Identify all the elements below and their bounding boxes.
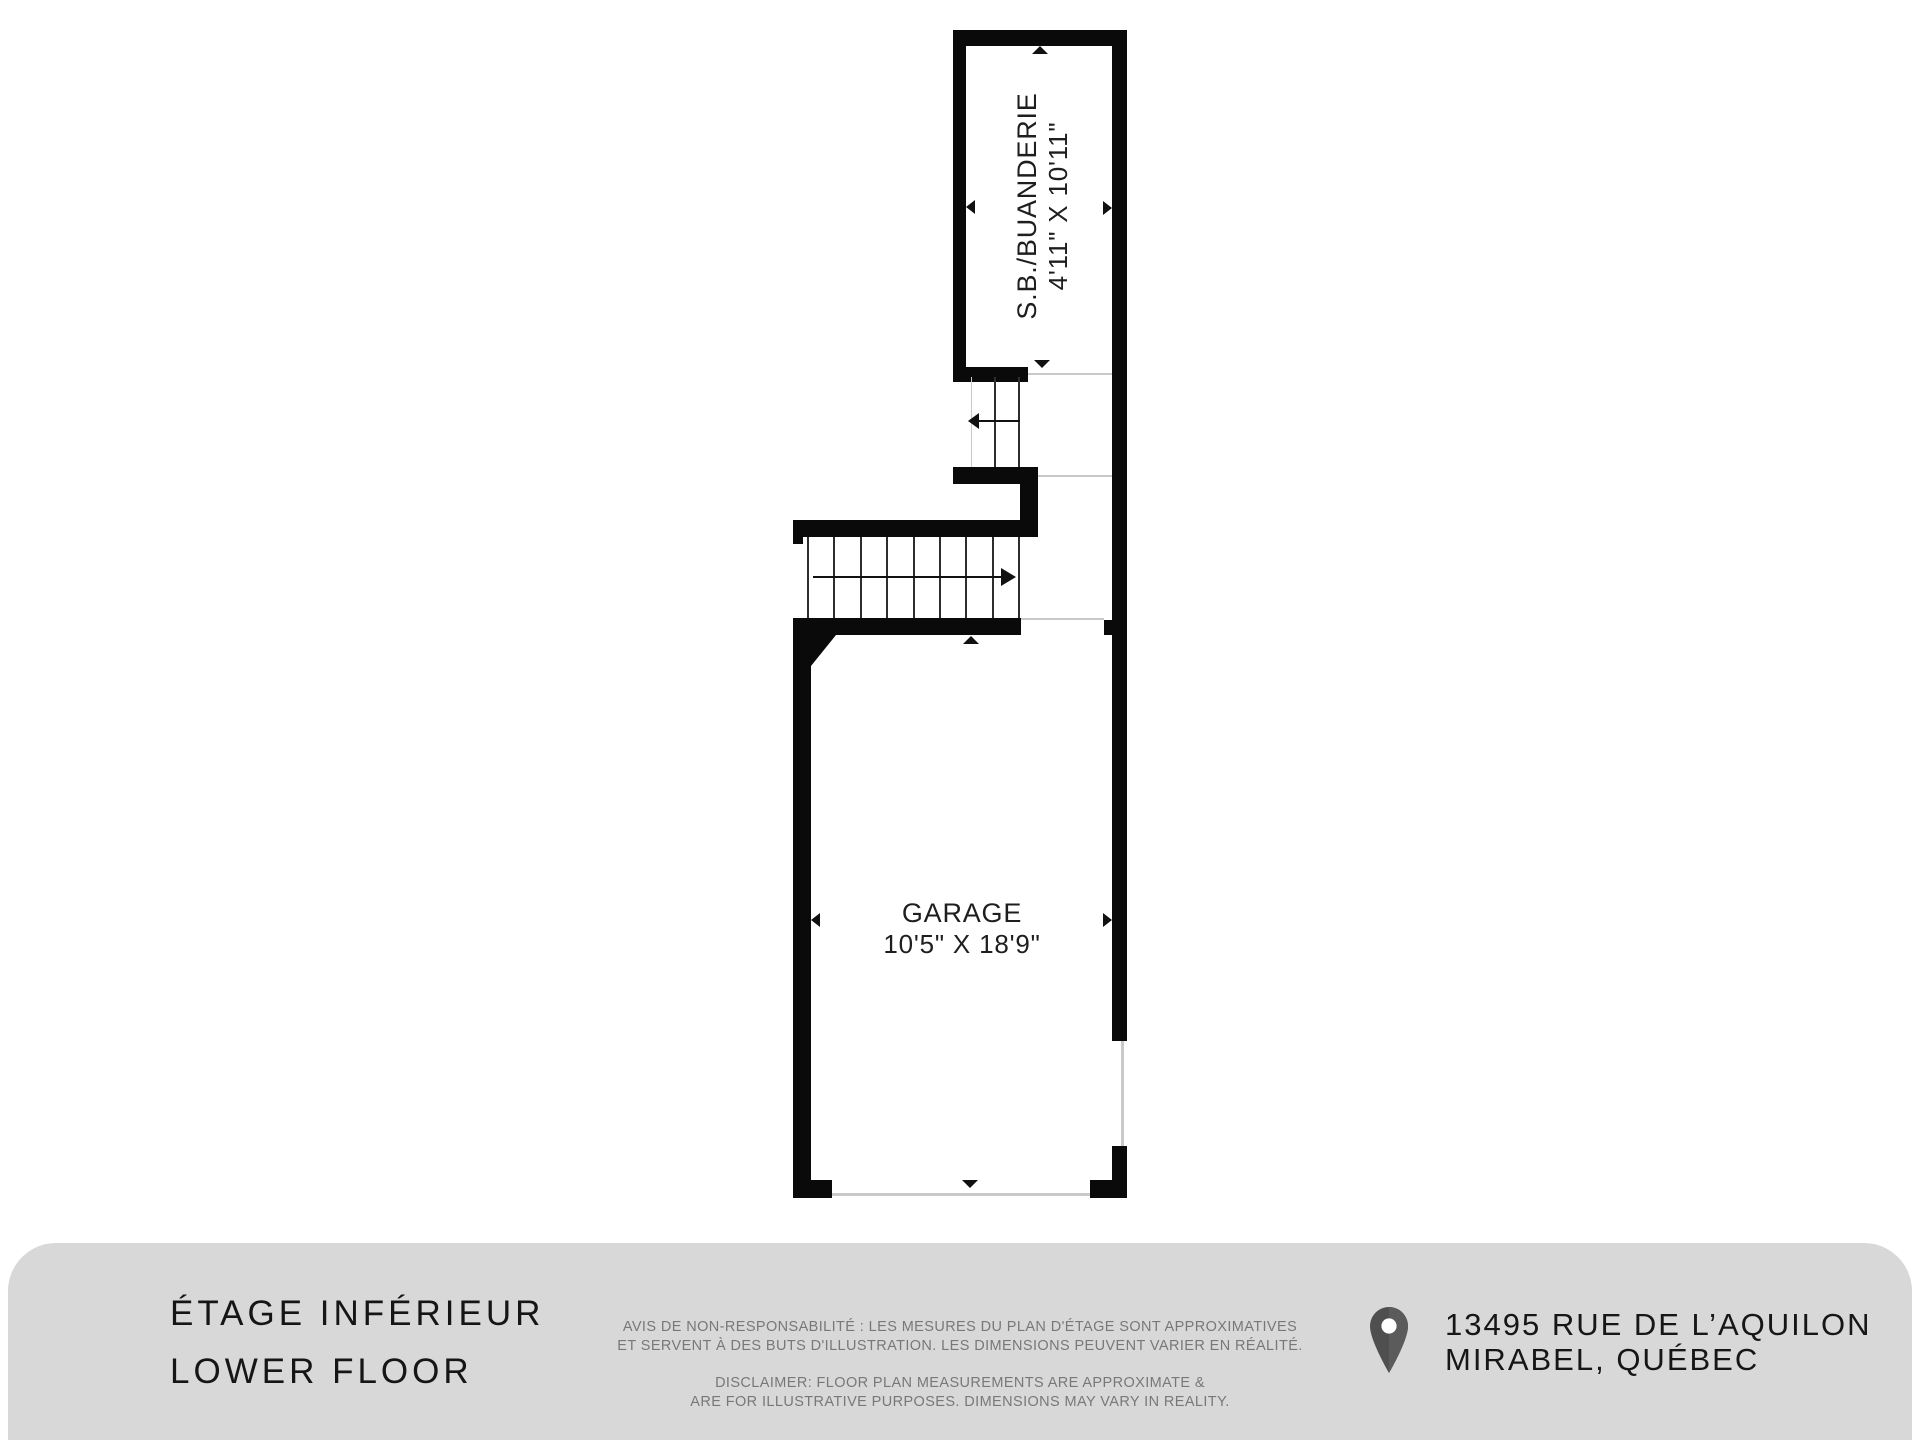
garage-label: GARAGE 10'5" X 18'9" <box>883 898 1040 960</box>
floor-plan: S.B./BUANDERIE 4'11" X 10'11" GARAGE 10'… <box>0 0 1920 1260</box>
wall-garage-left <box>793 618 811 1198</box>
map-pin-icon <box>1370 1306 1408 1379</box>
laundry-room-name: S.B./BUANDERIE <box>1012 92 1043 319</box>
garage-hall-opening-line <box>1021 618 1104 620</box>
disclaimer-english-line1: DISCLAIMER: FLOOR PLAN MEASUREMENTS ARE … <box>560 1374 1360 1393</box>
disclaimer-french-line2: ET SERVENT À DES BUTS D'ILLUSTRATION. LE… <box>560 1337 1360 1356</box>
garage-door-arrow <box>962 1180 978 1188</box>
disclaimer-french: AVIS DE NON-RESPONSABILITÉ : LES MESURES… <box>560 1318 1360 1356</box>
disclaimer-english-line2: ARE FOR ILLUSTRATIVE PURPOSES. DIMENSION… <box>560 1393 1360 1412</box>
laundry-room-label: S.B./BUANDERIE 4'11" X 10'11" <box>1012 92 1074 319</box>
wall-garage-bottom-left <box>793 1180 832 1198</box>
upper-stairs-direction-arrow <box>968 413 979 429</box>
wall-stairs-bottom <box>793 618 1021 635</box>
garage-left-arrow <box>811 913 820 927</box>
wall-right-upper <box>1112 30 1127 1041</box>
floor-plan-page: S.B./BUANDERIE 4'11" X 10'11" GARAGE 10'… <box>0 0 1920 1440</box>
laundry-room-dimensions: 4'11" X 10'11" <box>1043 92 1074 319</box>
address-block: 13495 RUE DE L’AQUILON MIRABEL, QUÉBEC <box>1445 1307 1872 1377</box>
landing-opening-line <box>1038 475 1112 477</box>
floor-title-english: LOWER FLOOR <box>170 1352 473 1392</box>
floor-title-french: ÉTAGE INFÉRIEUR <box>170 1294 544 1334</box>
laundry-door-arrow <box>1034 360 1050 368</box>
laundry-right-arrow <box>1103 201 1112 215</box>
garage-right-arrow <box>1103 913 1112 927</box>
wall-stairs-top <box>793 520 1038 537</box>
wall-right-stub <box>1104 620 1114 635</box>
garage-window-line <box>1121 1041 1124 1146</box>
wall-garage-bottom-right <box>1090 1180 1127 1198</box>
wall-landing-horizontal <box>953 467 1038 484</box>
address-line1: 13495 RUE DE L’AQUILON <box>1445 1307 1872 1342</box>
garage-entry-arrow <box>963 636 979 644</box>
laundry-top-arrow <box>1032 46 1048 54</box>
garage-door-line <box>832 1193 1090 1196</box>
disclaimer-english: DISCLAIMER: FLOOR PLAN MEASUREMENTS ARE … <box>560 1374 1360 1412</box>
garage-dimensions: 10'5" X 18'9" <box>883 929 1040 960</box>
wall-laundry-left <box>953 30 966 382</box>
wall-corner-chamfer <box>811 635 836 666</box>
main-stairs-direction-arrow <box>1001 568 1016 586</box>
wall-stairs-top-nub <box>793 537 803 544</box>
stair-tread-line <box>807 537 809 618</box>
address-line2: MIRABEL, QUÉBEC <box>1445 1342 1872 1377</box>
laundry-door-opening-line <box>1028 373 1112 375</box>
upper-stairs-direction-line <box>979 420 1020 422</box>
wall-laundry-top <box>953 30 1127 46</box>
stair-tread-line <box>1018 537 1020 618</box>
disclaimer-french-line1: AVIS DE NON-RESPONSABILITÉ : LES MESURES… <box>560 1318 1360 1337</box>
garage-name: GARAGE <box>883 898 1040 929</box>
main-stairs-direction-line <box>813 576 1003 578</box>
laundry-left-arrow <box>966 200 975 214</box>
